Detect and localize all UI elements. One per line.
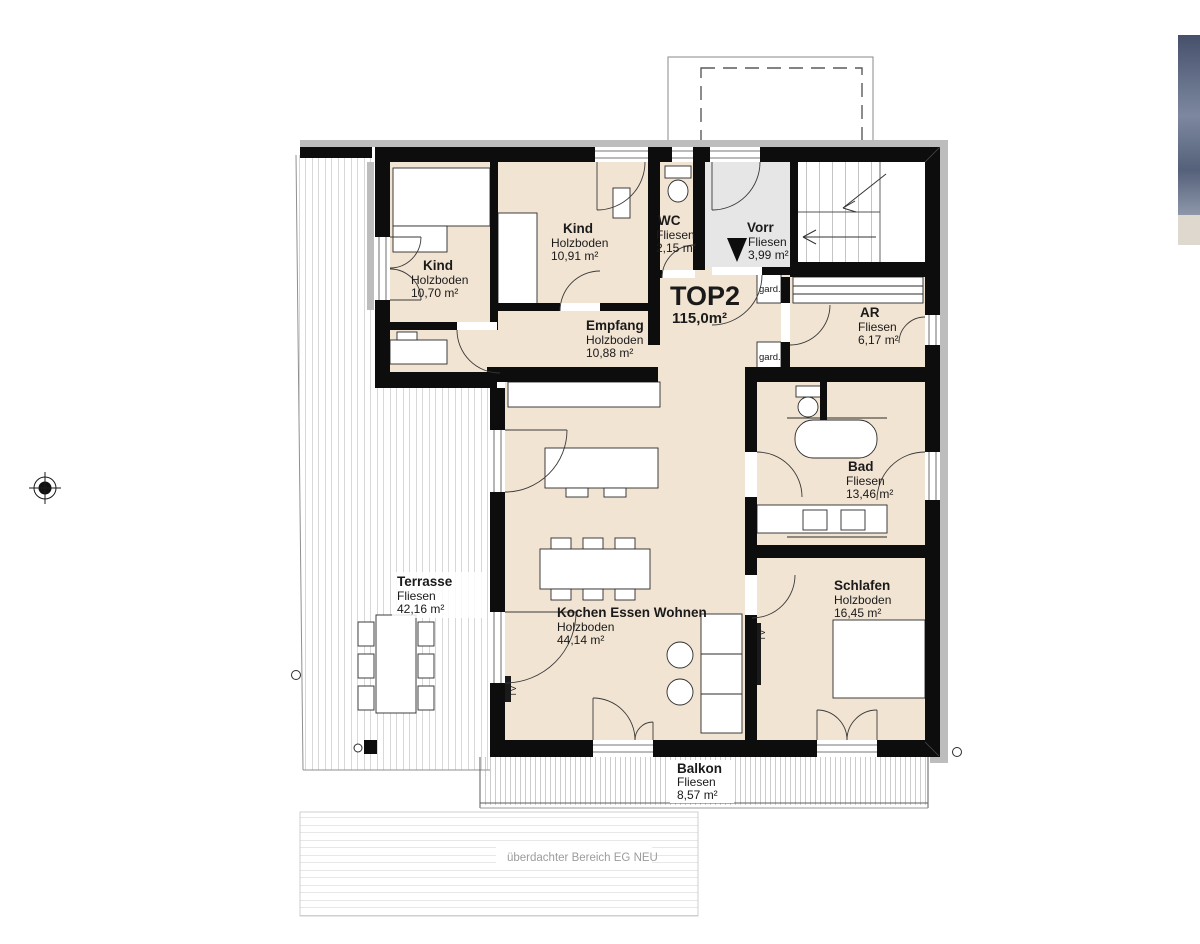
chair: [418, 686, 434, 710]
room-name: Kochen Essen Wohnen: [557, 605, 707, 620]
room-area: 2,15 m²: [656, 241, 697, 255]
chair: [615, 589, 635, 600]
room-floor: Holzboden: [557, 620, 614, 634]
room-name: Schlafen: [834, 578, 890, 593]
wardrobe: [393, 226, 447, 252]
room-floor: Fliesen: [677, 775, 716, 789]
room-area: 6,17 m²: [858, 333, 899, 347]
chair: [358, 686, 374, 710]
room-area: 10,91 m²: [551, 249, 598, 263]
room-name: WC: [658, 213, 681, 228]
room-name: AR: [860, 305, 880, 320]
room-name: Terrasse: [397, 574, 453, 589]
room-floor: Fliesen: [846, 474, 885, 488]
room-area: 10,88 m²: [586, 346, 633, 360]
wardrobe-label: gard.: [759, 352, 781, 363]
roof-outline-above-entrance: [668, 57, 873, 145]
unit-area: 115,0m²: [672, 310, 727, 327]
shelf: [793, 277, 923, 303]
sink-icon: [841, 510, 865, 530]
bathtub-icon: [795, 420, 877, 458]
room-floor: Fliesen: [858, 320, 897, 334]
room-floor: Holzboden: [551, 236, 608, 250]
neighbor-photo-sliver: [1178, 35, 1200, 245]
pouf: [667, 679, 693, 705]
toilet-icon: [796, 386, 821, 397]
room-name: Bad: [848, 459, 874, 474]
covered-area-label: überdachter Bereich EG NEU: [507, 852, 658, 864]
room-name: Vorr: [747, 220, 775, 235]
chair: [551, 589, 571, 600]
stool: [604, 488, 626, 497]
room-floor: Fliesen: [656, 228, 695, 242]
chair: [583, 538, 603, 549]
room-area: 13,46 m²: [846, 487, 893, 501]
wardrobe: [393, 168, 490, 226]
toilet-icon: [798, 397, 818, 417]
room-area: 10,70 m²: [411, 286, 458, 300]
wardrobe-label: gard.: [759, 284, 781, 295]
tv-label: TV: [757, 629, 767, 641]
covered-area: [300, 812, 698, 916]
room-floor: Fliesen: [748, 235, 787, 249]
room-name: Empfang: [586, 318, 644, 333]
chair: [418, 622, 434, 646]
desk-item: [397, 332, 417, 340]
room-floor: Holzboden: [586, 333, 643, 347]
bed-icon: [833, 620, 925, 698]
unit-name: TOP2: [670, 281, 740, 311]
room-floor: Holzboden: [834, 593, 891, 607]
wardrobe: [498, 213, 537, 307]
floor-plan-drawing: Kind Holzboden 10,70 m² Kind Holzboden 1…: [0, 0, 1200, 944]
chair: [551, 538, 571, 549]
room-name: Kind: [423, 258, 453, 273]
tv-label: TV: [508, 685, 518, 697]
room-area: 8,57 m²: [677, 788, 718, 802]
chair: [583, 589, 603, 600]
kitchen-counter: [508, 382, 660, 407]
chair: [615, 538, 635, 549]
chair: [358, 622, 374, 646]
room-area: 16,45 m²: [834, 606, 881, 620]
toilet-icon: [665, 166, 691, 178]
room-name: Kind: [563, 221, 593, 236]
toilet-icon: [668, 180, 688, 202]
pouf: [667, 642, 693, 668]
room-area: 44,14 m²: [557, 633, 604, 647]
dining-table: [540, 549, 650, 589]
chair: [418, 654, 434, 678]
outdoor-table: [376, 615, 416, 713]
stairs-icon: [798, 162, 925, 262]
sink-icon: [803, 510, 827, 530]
room-floor: Fliesen: [397, 589, 436, 603]
room-area: 42,16 m²: [397, 602, 444, 616]
chair: [358, 654, 374, 678]
desk: [390, 340, 447, 364]
room-name: Balkon: [677, 761, 722, 776]
floor-plan-page: Kind Holzboden 10,70 m² Kind Holzboden 1…: [0, 0, 1200, 944]
crosshair-icon: [29, 472, 61, 504]
room-floor: Holzboden: [411, 273, 468, 287]
stool: [566, 488, 588, 497]
sofa-icon: [701, 614, 742, 733]
room-area: 3,99 m²: [748, 248, 789, 262]
